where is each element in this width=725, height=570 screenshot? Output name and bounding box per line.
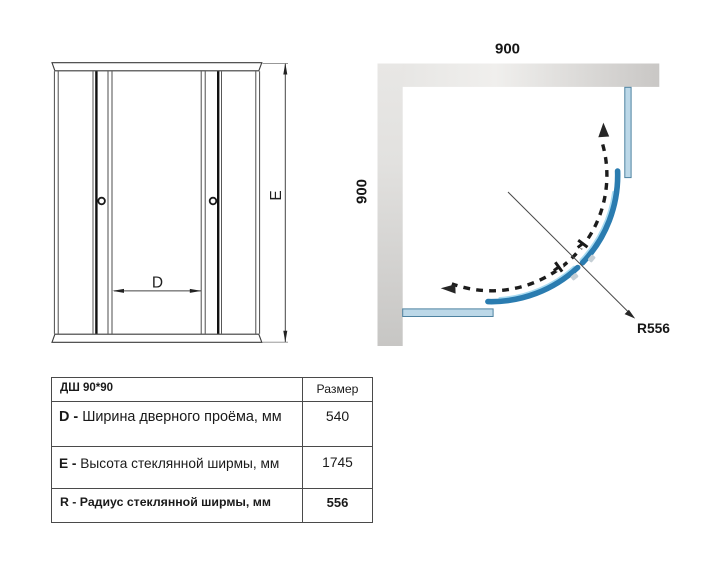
svg-text:R556: R556 [637, 321, 670, 336]
svg-text:E: E [268, 190, 285, 200]
svg-text:D: D [152, 275, 163, 292]
svg-text:900: 900 [353, 179, 370, 204]
svg-text:900: 900 [495, 41, 520, 58]
